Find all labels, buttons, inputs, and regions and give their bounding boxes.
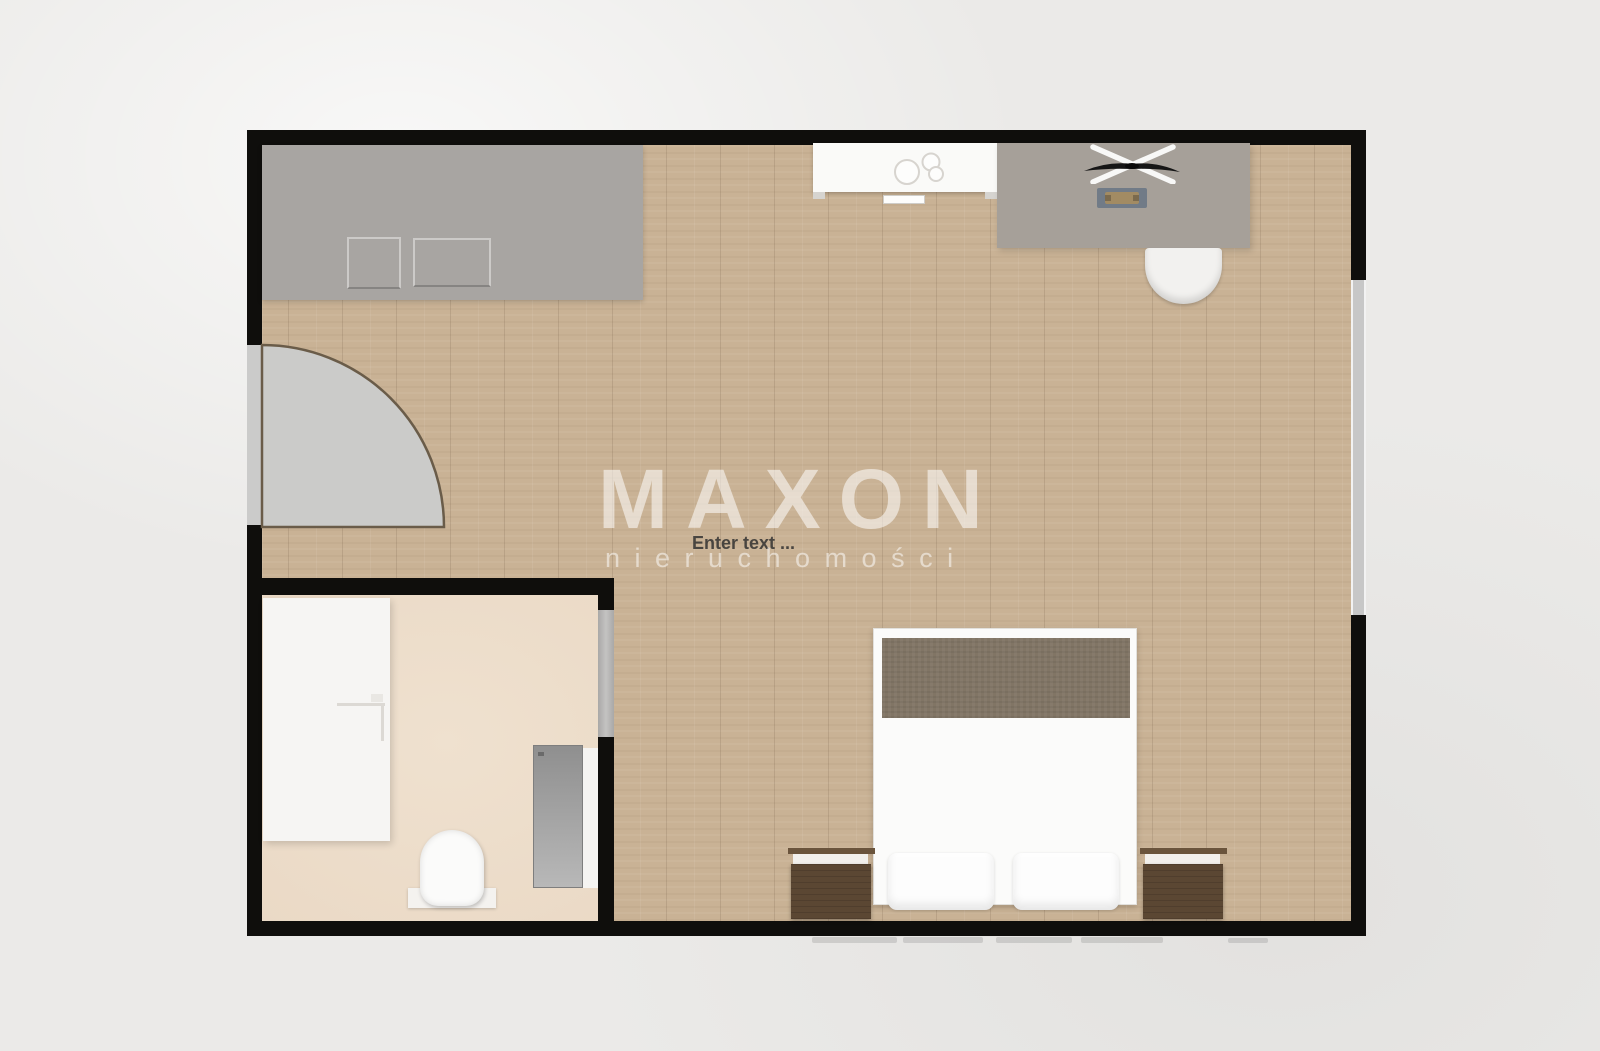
- nightstand-body: [1143, 864, 1223, 919]
- cabinet-foot-icon: [813, 192, 825, 199]
- double-bed: [873, 628, 1137, 905]
- toilet: [420, 830, 484, 906]
- sink-basin-icon: [813, 143, 997, 192]
- window: [1351, 280, 1366, 615]
- pillow-right: [1013, 853, 1119, 910]
- wardrobe-door-left: [347, 237, 401, 289]
- shower-knob-icon: [538, 752, 544, 756]
- faucet-icon: [337, 703, 385, 706]
- wardrobe: [262, 145, 643, 300]
- nightstand-left: [788, 848, 875, 919]
- faucet-icon: [381, 703, 384, 741]
- keyboard-key-icon: [1133, 195, 1139, 201]
- keyboard-key-icon: [1105, 195, 1111, 201]
- furniture-shadow: [903, 937, 983, 943]
- furniture-shadow: [1228, 938, 1268, 943]
- shower-panel: [583, 748, 598, 888]
- furniture-shadow: [1081, 937, 1163, 943]
- furniture-shadow: [996, 937, 1072, 943]
- brand-watermark-subtitle: nieruchomości: [605, 545, 968, 572]
- bathroom-door-opening: [598, 610, 614, 737]
- faucet-knob-icon: [371, 694, 383, 702]
- nightstand-right: [1140, 848, 1227, 919]
- nightstand-shelf: [793, 854, 868, 864]
- bathtub: [263, 598, 390, 841]
- furniture-shadow: [812, 937, 897, 943]
- wardrobe-door-right: [413, 238, 491, 287]
- cabinet-foot-icon: [985, 192, 997, 199]
- entry-door-swing-icon: [247, 330, 447, 530]
- sink-cabinet: [813, 143, 997, 192]
- nightstand-shelf: [1145, 854, 1220, 864]
- cabinet-handle-icon: [883, 195, 925, 204]
- blanket: [882, 638, 1130, 718]
- ceiling-fan-icon: [1082, 144, 1182, 184]
- bathroom-wall-horizontal: [247, 578, 614, 595]
- nightstand-body: [791, 864, 871, 919]
- keyboard: [1097, 188, 1147, 208]
- pillow-left: [888, 853, 994, 910]
- floor-plan-image: MAXON Enter text ... nieruchomości: [0, 0, 1600, 1051]
- brand-watermark: MAXON: [598, 457, 1001, 541]
- shower-enclosure: [533, 745, 583, 888]
